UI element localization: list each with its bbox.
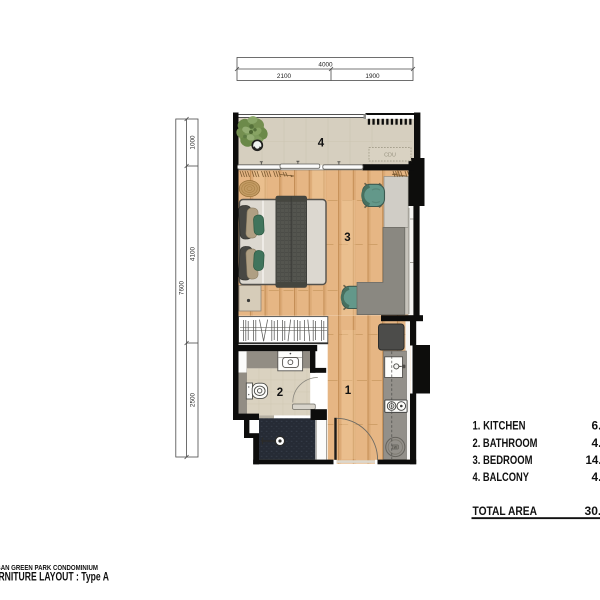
svg-text:1. KITCHEN: 1. KITCHEN — [473, 420, 526, 432]
svg-text:7600: 7600 — [179, 280, 186, 295]
svg-text:30.3: 30.3 — [585, 504, 600, 518]
svg-text:3: 3 — [344, 232, 350, 244]
svg-text:2100: 2100 — [277, 73, 292, 80]
svg-text:4100: 4100 — [190, 246, 197, 261]
svg-text:14.5: 14.5 — [586, 455, 600, 467]
svg-text:4. BALCONY: 4. BALCONY — [473, 472, 530, 484]
svg-text:1000: 1000 — [190, 135, 197, 150]
svg-text:CDU: CDU — [384, 153, 396, 159]
svg-text:2500: 2500 — [190, 392, 197, 407]
svg-text:FURNITURE LAYOUT : Type A: FURNITURE LAYOUT : Type A — [0, 570, 109, 584]
svg-text:4.0: 4.0 — [592, 438, 600, 450]
svg-text:6.5: 6.5 — [592, 420, 600, 432]
svg-text:4000: 4000 — [318, 62, 333, 69]
svg-text:3. BEDROOM: 3. BEDROOM — [473, 455, 533, 467]
svg-text:2: 2 — [277, 387, 283, 399]
svg-text:4.1: 4.1 — [592, 472, 600, 484]
svg-text:1: 1 — [345, 385, 352, 397]
svg-text:1900: 1900 — [365, 73, 380, 80]
svg-text:4: 4 — [318, 138, 325, 150]
svg-text:2. BATHROOM: 2. BATHROOM — [473, 438, 538, 450]
svg-text:TOTAL AREA: TOTAL AREA — [473, 504, 538, 518]
